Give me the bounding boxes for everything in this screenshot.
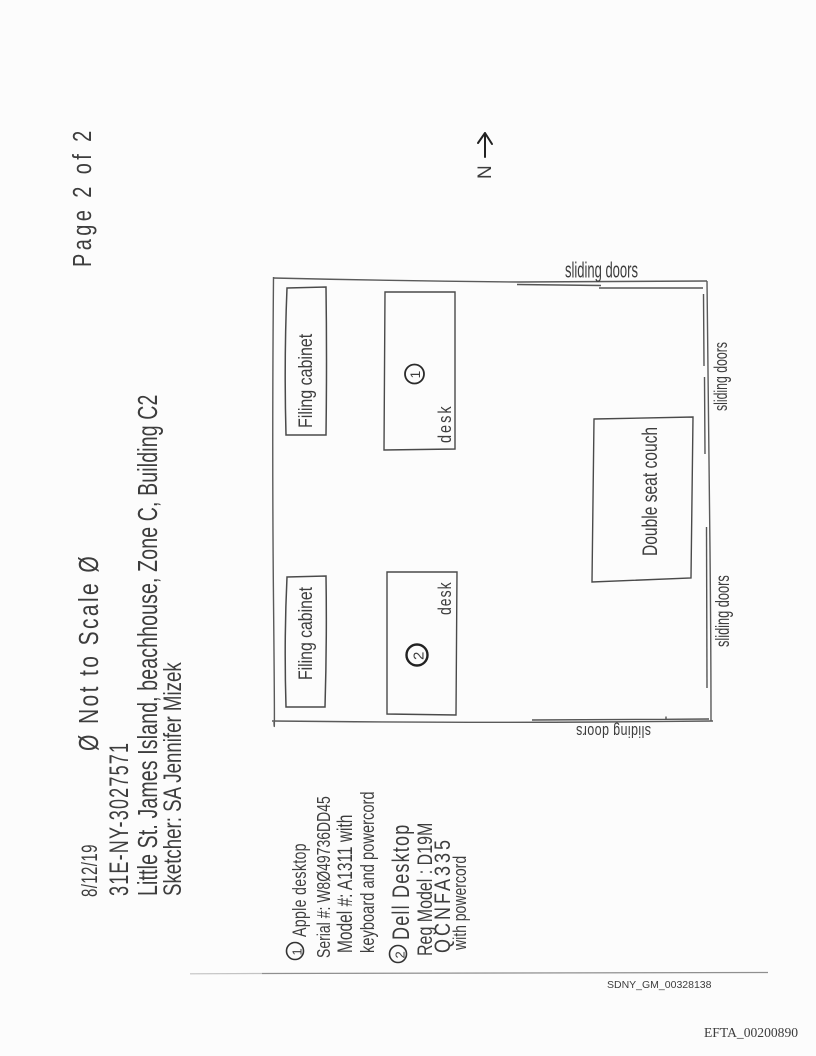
svg-text:Serial #: W8Ø49736DD45: Serial #: W8Ø49736DD45: [313, 796, 335, 958]
svg-text:sliding doors: sliding doors: [565, 258, 638, 282]
svg-text:EFTA_00200890: EFTA_00200890: [704, 1025, 798, 1040]
svg-text:keyboard and powercord: keyboard and powercord: [356, 791, 379, 953]
svg-text:with powercord: with powercord: [449, 856, 471, 951]
svg-text:Double seat couch: Double seat couch: [638, 427, 662, 556]
svg-text:2: 2: [411, 652, 428, 660]
svg-text:Apple desktop: Apple desktop: [289, 843, 311, 937]
svg-text:1: 1: [407, 371, 423, 379]
svg-text:SDNY_GM_00328138: SDNY_GM_00328138: [607, 979, 712, 991]
svg-text:N: N: [475, 165, 496, 179]
svg-text:Filing cabinet: Filing cabinet: [295, 587, 317, 680]
svg-text:2: 2: [393, 951, 408, 958]
svg-text:Filing cabinet: Filing cabinet: [295, 334, 317, 428]
svg-text:sliding doors: sliding doors: [713, 575, 734, 647]
svg-text:desk: desk: [434, 581, 456, 615]
svg-text:1: 1: [290, 948, 305, 955]
svg-text:Sketcher: SA Jennifer Mizek: Sketcher: SA Jennifer Mizek: [158, 662, 186, 896]
svg-text:8/12/19: 8/12/19: [78, 844, 103, 897]
svg-text:Ø Not to Scale Ø: Ø Not to Scale Ø: [74, 554, 104, 751]
svg-text:desk: desk: [434, 404, 455, 443]
svg-text:Model #: A1311 with: Model #: A1311 with: [333, 815, 357, 953]
svg-text:sliding doors: sliding doors: [712, 342, 732, 411]
svg-text:Page 2 of 2: Page 2 of 2: [67, 127, 96, 267]
svg-text:sliding doors: sliding doors: [576, 721, 651, 739]
svg-text:31E-NY-3027571: 31E-NY-3027571: [103, 742, 134, 896]
svg-text:Dell Desktop: Dell Desktop: [387, 824, 414, 940]
